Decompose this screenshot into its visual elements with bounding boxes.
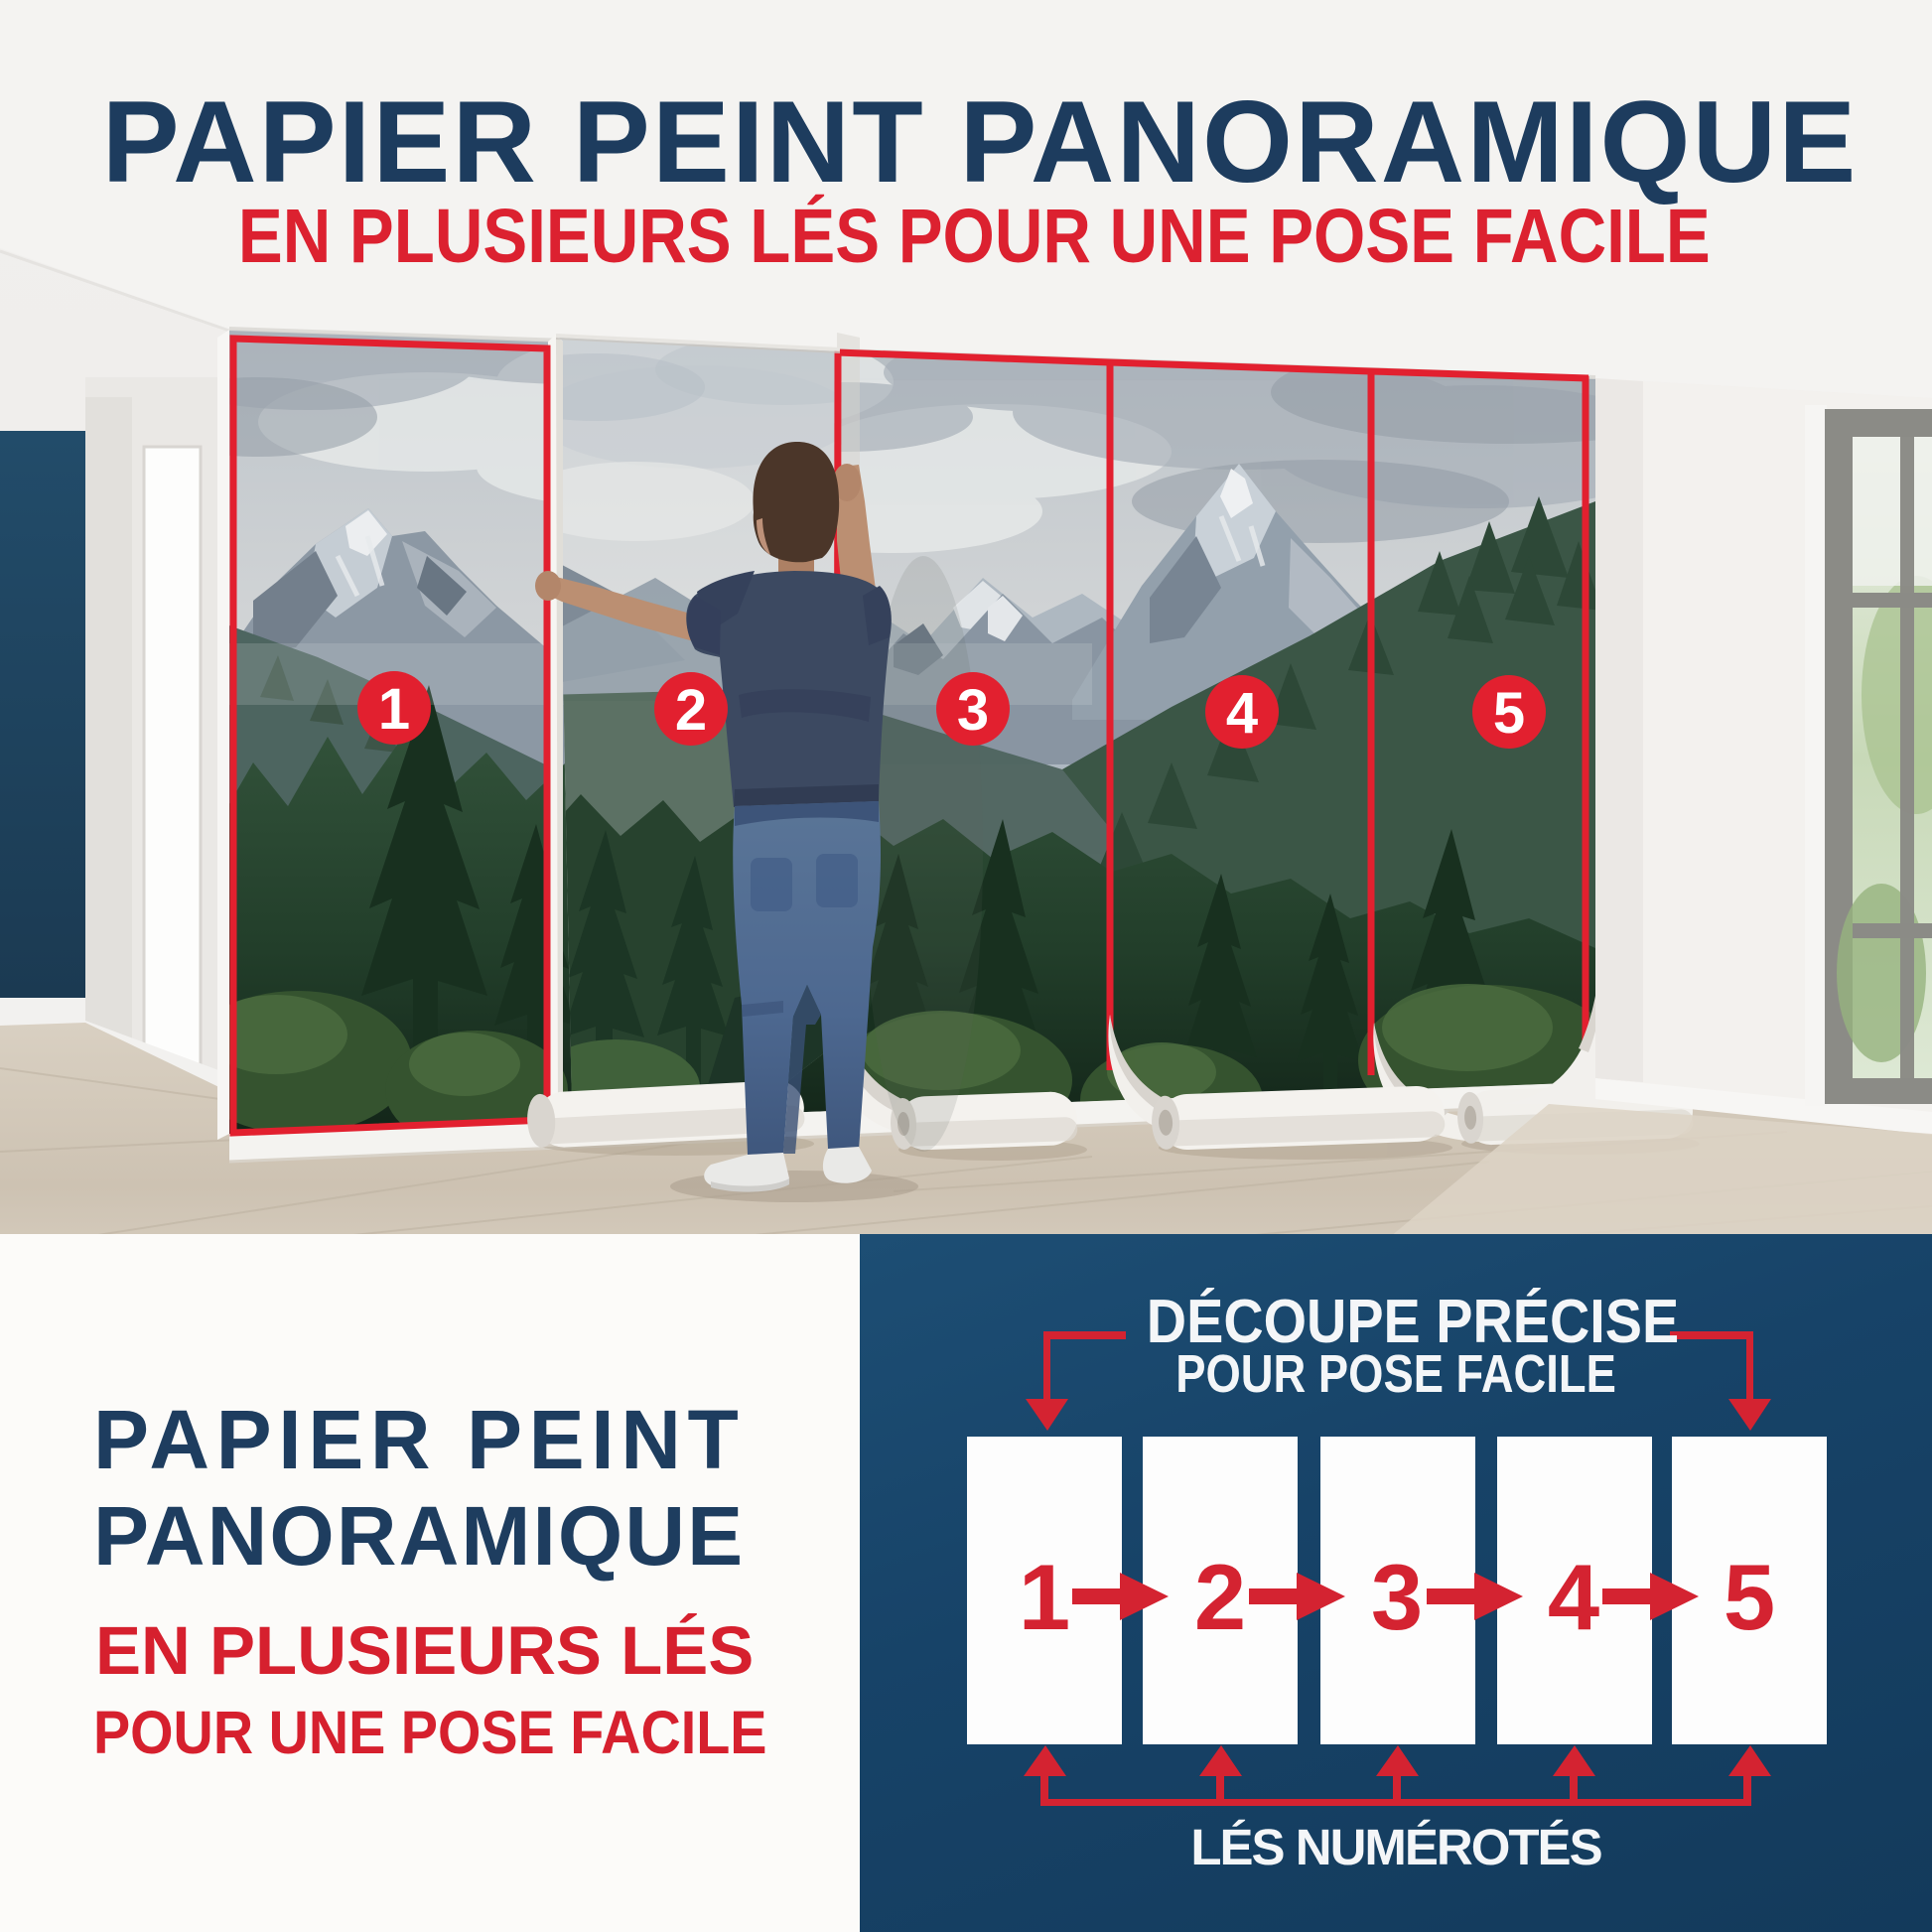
svg-text:5: 5 bbox=[1493, 681, 1525, 746]
svg-text:1: 1 bbox=[378, 677, 410, 742]
svg-text:4: 4 bbox=[1548, 1545, 1599, 1649]
svg-text:3: 3 bbox=[957, 678, 989, 743]
svg-text:2: 2 bbox=[675, 678, 707, 743]
svg-text:3: 3 bbox=[1371, 1545, 1423, 1649]
svg-text:2: 2 bbox=[1194, 1545, 1246, 1649]
svg-text:5: 5 bbox=[1724, 1545, 1775, 1649]
svg-text:1: 1 bbox=[1019, 1545, 1070, 1649]
svg-text:4: 4 bbox=[1226, 681, 1258, 746]
